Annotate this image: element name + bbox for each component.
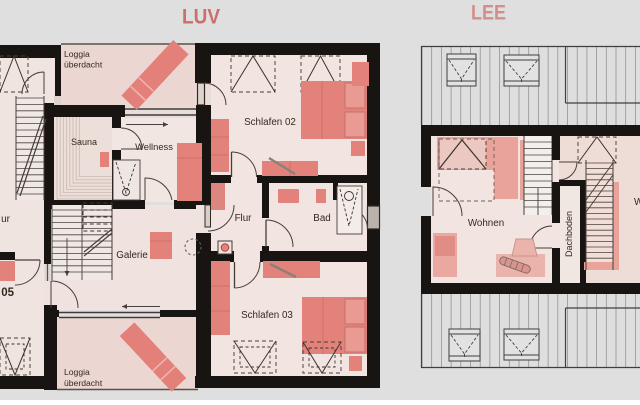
svg-text:ur: ur xyxy=(1,214,11,225)
svg-text:LUV: LUV xyxy=(182,5,221,29)
svg-text:Wellness: Wellness xyxy=(135,141,173,152)
svg-text:Wohnen: Wohnen xyxy=(468,218,504,229)
svg-text:LEE: LEE xyxy=(471,2,506,25)
svg-text:Schlafen 03: Schlafen 03 xyxy=(241,310,293,321)
svg-text:Bad: Bad xyxy=(313,213,330,224)
svg-text:Loggia: Loggia xyxy=(64,49,90,59)
svg-text:Schlafen 02: Schlafen 02 xyxy=(244,117,296,128)
svg-text:W: W xyxy=(634,197,640,208)
svg-text:Dachboden: Dachboden xyxy=(564,211,574,257)
svg-text:05: 05 xyxy=(1,287,14,299)
svg-text:Sauna: Sauna xyxy=(71,137,97,147)
svg-text:Loggia: Loggia xyxy=(64,367,90,377)
svg-text:Galerie: Galerie xyxy=(116,250,148,261)
svg-text:überdacht: überdacht xyxy=(64,378,103,388)
svg-text:überdacht: überdacht xyxy=(64,60,103,70)
svg-text:Flur: Flur xyxy=(235,213,253,224)
